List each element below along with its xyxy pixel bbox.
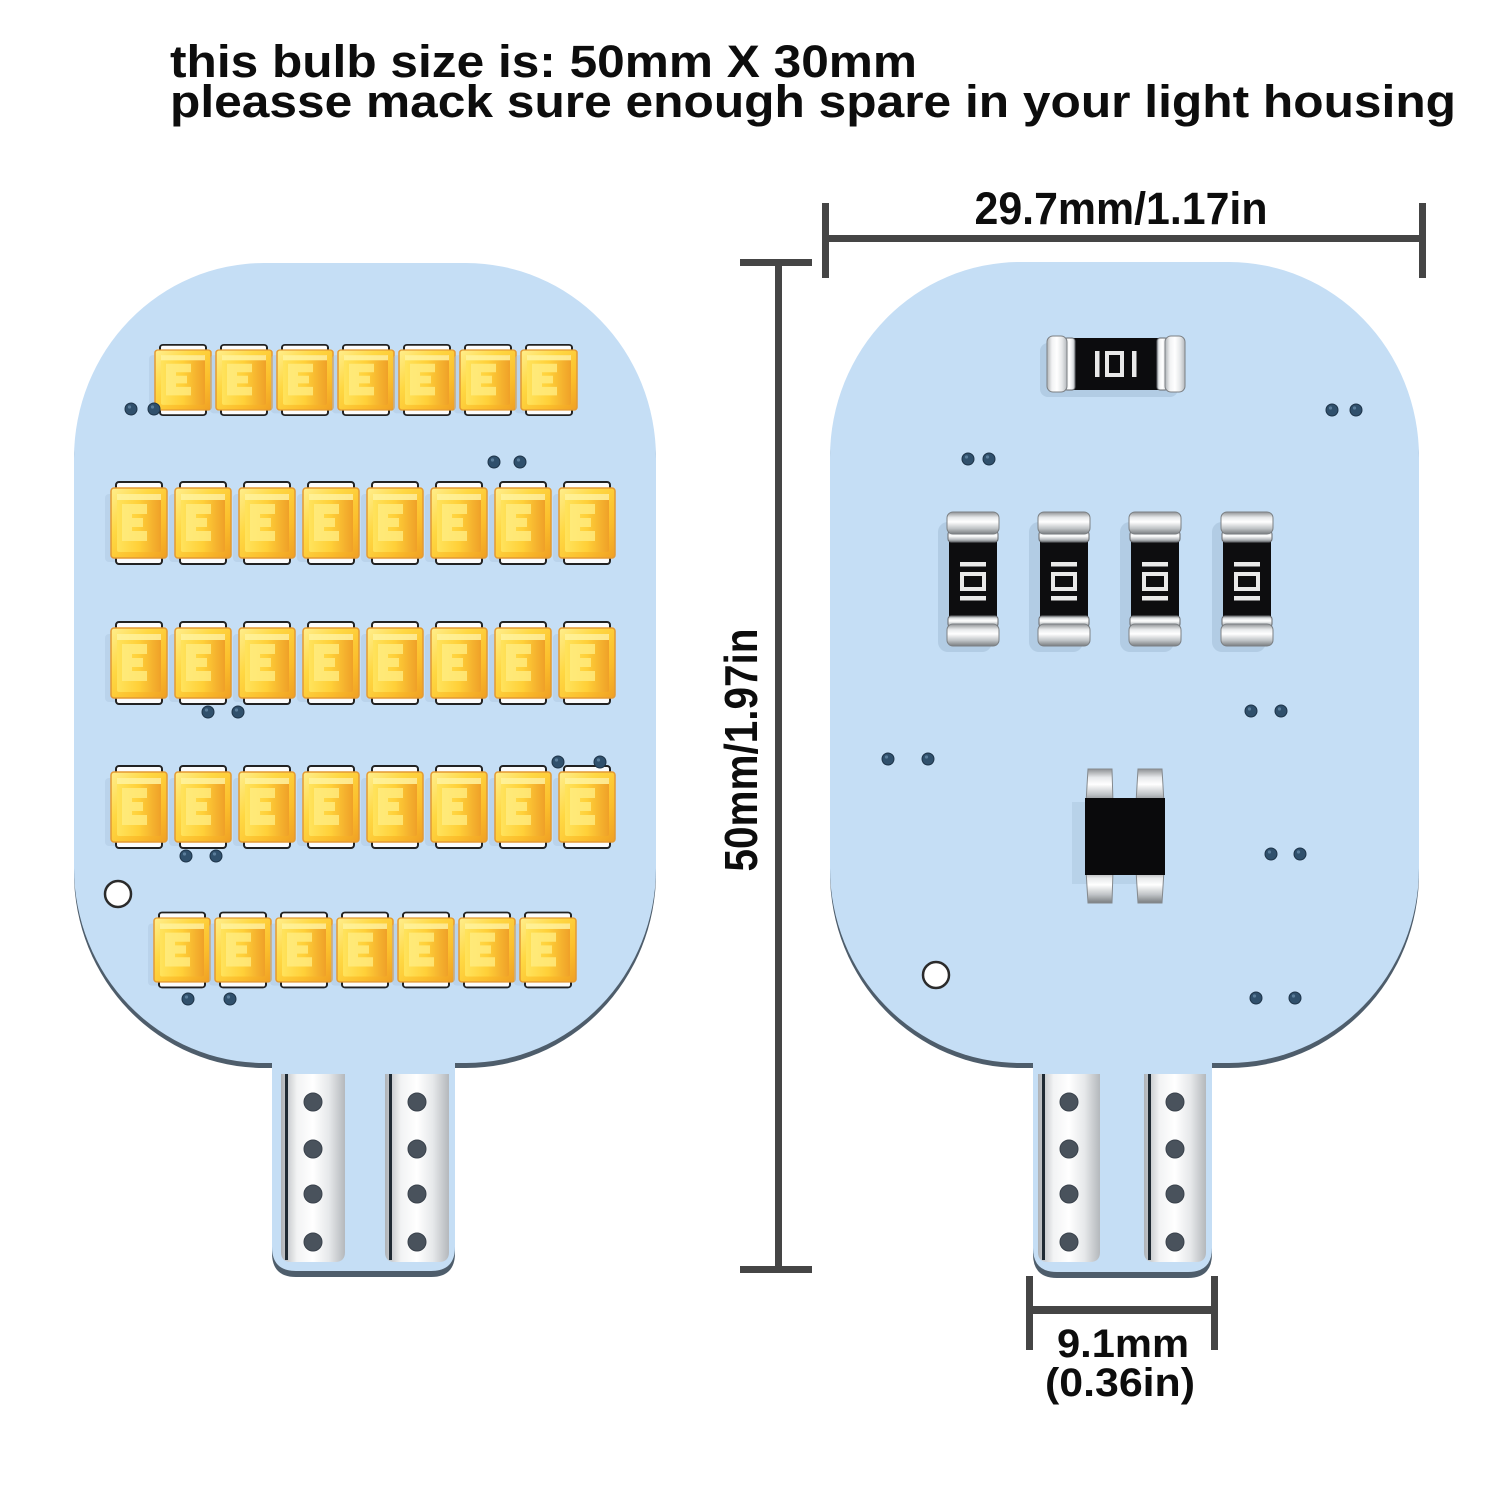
svg-text:29.7mm/1.17in: 29.7mm/1.17in bbox=[975, 183, 1268, 234]
svg-text:(0.36in): (0.36in) bbox=[1045, 1361, 1195, 1405]
svg-text:9.1mm: 9.1mm bbox=[1057, 1322, 1189, 1366]
svg-text:pleasse mack sure enough spare: pleasse mack sure enough spare in your l… bbox=[170, 76, 1456, 127]
svg-text:50mm/1.97in: 50mm/1.97in bbox=[715, 629, 767, 872]
